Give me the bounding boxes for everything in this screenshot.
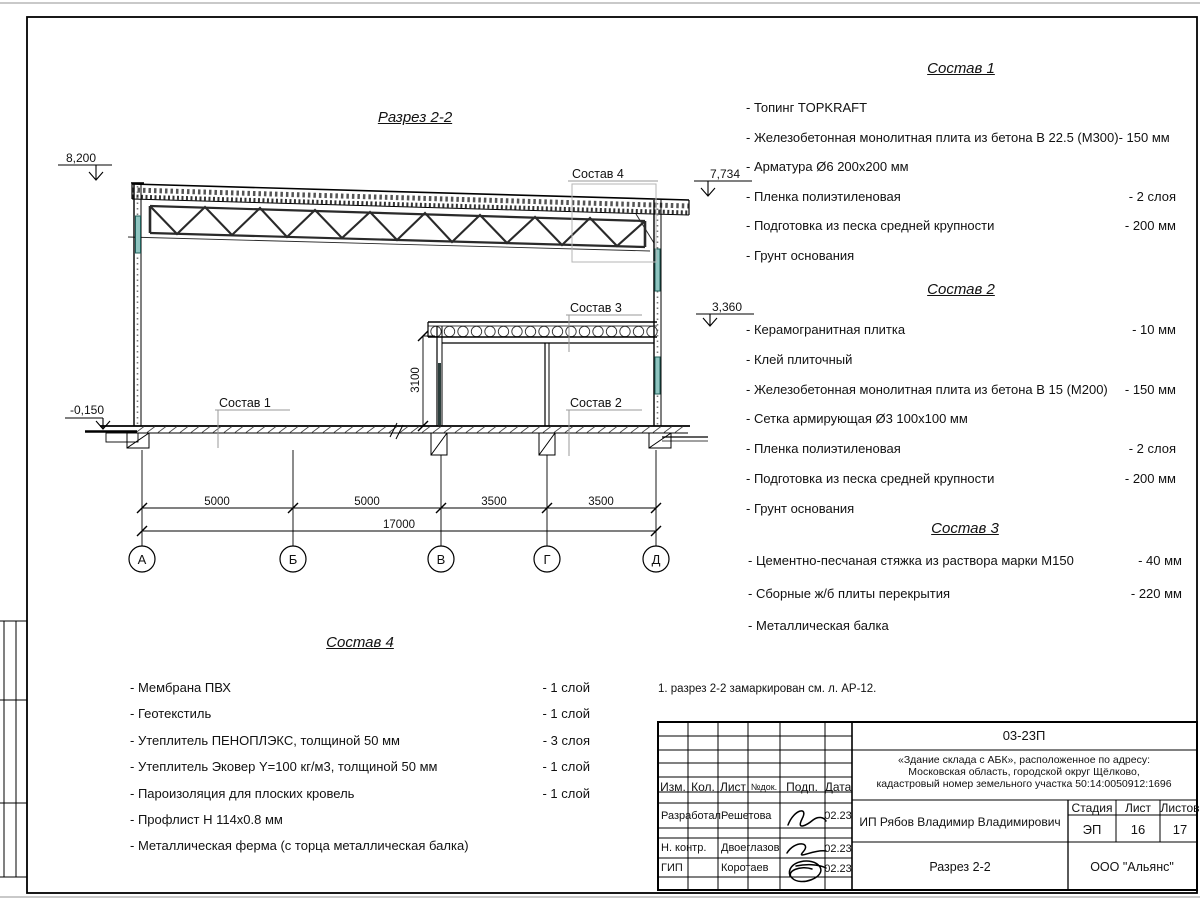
axis-bubble-v: В (437, 552, 446, 567)
callout-sostav1: Состав 1 (219, 396, 271, 410)
composition-item: - Утеплитель ПЕНОПЛЭКС, толщиной 50 мм -… (130, 733, 590, 759)
tb-name-reshetova: Решетова (721, 810, 771, 822)
callout-sostav2: Состав 2 (570, 396, 622, 410)
composition-item: - Геотекстиль - 1 слой (130, 706, 590, 732)
hollow-core-slab-holes (431, 326, 657, 336)
tb-col-izm: Изм. (660, 780, 686, 794)
section-title: Разрез 2-2 (378, 109, 452, 126)
layer-name: - Подготовка из песка средней крупности (746, 471, 994, 486)
tb-sheet-name: Разрез 2-2 (929, 860, 990, 874)
layer-name: - Сборные ж/б плиты перекрытия (748, 586, 950, 601)
layer-value: - 3 слоя (543, 733, 590, 748)
signatures (787, 811, 826, 882)
tb-role-razrabotal: Разработал (661, 810, 721, 822)
layer-name: - Пленка полиэтиленовая (746, 189, 901, 204)
tb-role-nkontr: Н. контр. (661, 842, 706, 854)
roof-truss (128, 206, 654, 251)
composition-item: - Цементно-песчаная стяжка из раствора м… (748, 553, 1182, 586)
layer-value: - 2 слоя (1129, 189, 1176, 204)
composition-item: - Железобетонная монолитная плита из бет… (746, 382, 1176, 412)
composition-item: - Сборные ж/б плиты перекрытия - 220 мм (748, 586, 1182, 619)
window-left (136, 216, 141, 253)
tb-col-podp: Подп. (786, 780, 818, 794)
dimension-lines (129, 331, 669, 572)
tb-stage-value: ЭП (1083, 822, 1102, 837)
layer-name: - Мембрана ПВХ (130, 680, 231, 695)
composition-item: - Пароизоляция для плоских кровель - 1 с… (130, 786, 590, 812)
layer-name: - Арматура Ø6 200x200 мм (746, 159, 909, 174)
elevation-ground: -0,150 (70, 403, 104, 417)
layer-value: - 1 слой (542, 786, 590, 801)
layer-value: - 2 слоя (1129, 441, 1176, 456)
composition-list-3: Состав 3 - Цементно-песчаная стяжка из р… (748, 520, 1182, 651)
layer-name: - Топинг TOPKRAFT (746, 100, 867, 115)
layer-value: - 1 слой (542, 706, 590, 721)
axis-bubble-b: Б (289, 552, 298, 567)
layer-name: - Железобетонная монолитная плита из бет… (746, 130, 1170, 145)
tb-project-line2: Московская область, городской округ Щёлк… (908, 766, 1140, 778)
tb-client: ИП Рябов Владимир Владимирович (859, 815, 1060, 829)
dim-total: 17000 (383, 519, 415, 531)
layer-value: - 10 мм (1132, 322, 1176, 337)
signature-razrabotal (788, 811, 826, 826)
floor (85, 423, 708, 455)
composition-1-title: Состав 1 (746, 60, 1176, 77)
composition-item: - Клей плиточный (746, 352, 1176, 382)
composition-item: - Металлическая балка (748, 618, 1182, 651)
composition-item: - Пленка полиэтиленовая - 2 слоя (746, 441, 1176, 471)
composition-item: - Подготовка из песка средней крупности … (746, 471, 1176, 501)
composition-2-items: - Керамогранитная плитка - 10 мм - Клей … (746, 322, 1176, 531)
composition-item: - Железобетонная монолитная плита из бет… (746, 130, 1176, 160)
layer-value: - 40 мм (1138, 553, 1182, 568)
composition-4-title: Состав 4 (130, 634, 590, 651)
composition-item: - Грунт основания (746, 248, 1176, 278)
tb-col-kol: Кол. (691, 780, 715, 794)
composition-list-2: Состав 2 - Керамогранитная плитка - 10 м… (746, 281, 1176, 531)
layer-name: - Геотекстиль (130, 706, 211, 721)
axis-bubble-g: Г (543, 552, 550, 567)
tb-col-ndok: №док. (751, 782, 777, 792)
composition-3-items: - Цементно-песчаная стяжка из раствора м… (748, 553, 1182, 651)
tb-sheets-label: Листов (1161, 801, 1200, 815)
layer-name: - Клей плиточный (746, 352, 852, 367)
left-margin-stamp (0, 621, 27, 877)
dim-span-2: 5000 (354, 496, 380, 508)
composition-item: - Мембрана ПВХ - 1 слой (130, 680, 590, 706)
composition-item: - Топинг TOPKRAFT (746, 100, 1176, 130)
layer-name: - Железобетонная монолитная плита из бет… (746, 382, 1108, 397)
tb-project-line1: «Здание склада с АБК», расположенное по … (898, 754, 1150, 766)
elevation-slab: 3,360 (712, 300, 742, 314)
composition-list-4: Состав 4 - Мембрана ПВХ - 1 слой - Геоте… (130, 634, 590, 865)
callout-sostav4: Состав 4 (572, 167, 624, 181)
tb-sheets-value: 17 (1173, 822, 1187, 837)
layer-name: - Профлист Н 114x0.8 мм (130, 812, 283, 827)
layer-name: - Подготовка из песка средней крупности (746, 218, 994, 233)
composition-item: - Профлист Н 114x0.8 мм (130, 812, 590, 838)
tb-sheet-label: Лист (1125, 801, 1151, 815)
tb-stage-label: Стадия (1072, 801, 1113, 815)
dim-height-3100: 3100 (410, 360, 422, 400)
layer-name: - Цементно-песчаная стяжка из раствора м… (748, 553, 1074, 568)
composition-item: - Утеплитель Эковер Y=100 кг/м3, толщино… (130, 759, 590, 785)
composition-item: - Пленка полиэтиленовая - 2 слоя (746, 189, 1176, 219)
composition-2-title: Состав 2 (746, 281, 1176, 298)
elevation-roof-left: 8,200 (66, 151, 96, 165)
tb-doc-code: 03-23П (1003, 728, 1046, 743)
tb-company: ООО "Альянс" (1090, 860, 1174, 874)
composition-item: - Сетка армирующая Ø3 100x100 мм (746, 411, 1176, 441)
layer-name: - Металлическая балка (748, 618, 889, 633)
composition-list-1: Состав 1 - Топинг TOPKRAFT - Железобетон… (746, 60, 1176, 278)
layer-name: - Керамогранитная плитка (746, 322, 905, 337)
layer-value: - 1 слой (542, 680, 590, 695)
signature-nkontr-gip (787, 844, 826, 882)
tb-role-gip: ГИП (661, 862, 683, 874)
layer-name: - Грунт основания (746, 501, 854, 516)
tb-date-2: 02.23 (824, 843, 852, 855)
callout-sostav3: Состав 3 (570, 301, 622, 315)
tb-name-dvoeglazov: Двоеглазов (721, 842, 779, 854)
dim-span-4: 3500 (588, 496, 614, 508)
elevation-roof-right: 7,734 (710, 167, 740, 181)
dim-span-1: 5000 (204, 496, 230, 508)
tb-date-1: 02.23 (824, 810, 852, 822)
composition-4-items: - Мембрана ПВХ - 1 слой - Геотекстиль - … (130, 680, 590, 865)
tb-sheet-value: 16 (1131, 822, 1145, 837)
composition-item: - Подготовка из песка средней крупности … (746, 218, 1176, 248)
layer-name: - Грунт основания (746, 248, 854, 263)
layer-name: - Утеплитель Эковер Y=100 кг/м3, толщино… (130, 759, 437, 774)
composition-item: - Керамогранитная плитка - 10 мм (746, 322, 1176, 352)
axis-bubble-a: А (138, 552, 147, 567)
tb-col-data: Дата (825, 780, 852, 794)
composition-1-items: - Топинг TOPKRAFT - Железобетонная монол… (746, 100, 1176, 278)
axis-bubble-d: Д (652, 552, 661, 567)
layer-name: - Сетка армирующая Ø3 100x100 мм (746, 411, 968, 426)
roof-deck (132, 184, 689, 215)
layer-value: - 200 мм (1125, 471, 1176, 486)
layer-name: - Утеплитель ПЕНОПЛЭКС, толщиной 50 мм (130, 733, 400, 748)
layer-value: - 150 мм (1125, 382, 1176, 397)
layer-value: - 1 слой (542, 759, 590, 774)
layer-value: - 220 мм (1131, 586, 1182, 601)
tb-col-list: Лист (720, 780, 746, 794)
drawing-note: 1. разрез 2-2 замаркирован см. л. АР-12. (658, 683, 876, 695)
drawing-sheet: { "colors": { "window_fill": "#8fc4c0", … (0, 0, 1200, 900)
tb-project-line3: кадастровый номер земельного участка 50:… (876, 778, 1171, 790)
composition-item: - Металлическая ферма (с торца металличе… (130, 838, 590, 864)
layer-name: - Металлическая ферма (с торца металличе… (130, 838, 469, 853)
window-right-lower (655, 357, 660, 394)
tb-date-3: 02.23 (824, 863, 852, 875)
layer-name: - Пароизоляция для плоских кровель (130, 786, 354, 801)
dim-span-3: 3500 (481, 496, 507, 508)
layer-value: - 200 мм (1125, 218, 1176, 233)
layer-name: - Пленка полиэтиленовая (746, 441, 901, 456)
composition-3-title: Состав 3 (748, 520, 1182, 537)
tb-name-korotaev: Коротаев (721, 862, 769, 874)
composition-item: - Арматура Ø6 200x200 мм (746, 159, 1176, 189)
